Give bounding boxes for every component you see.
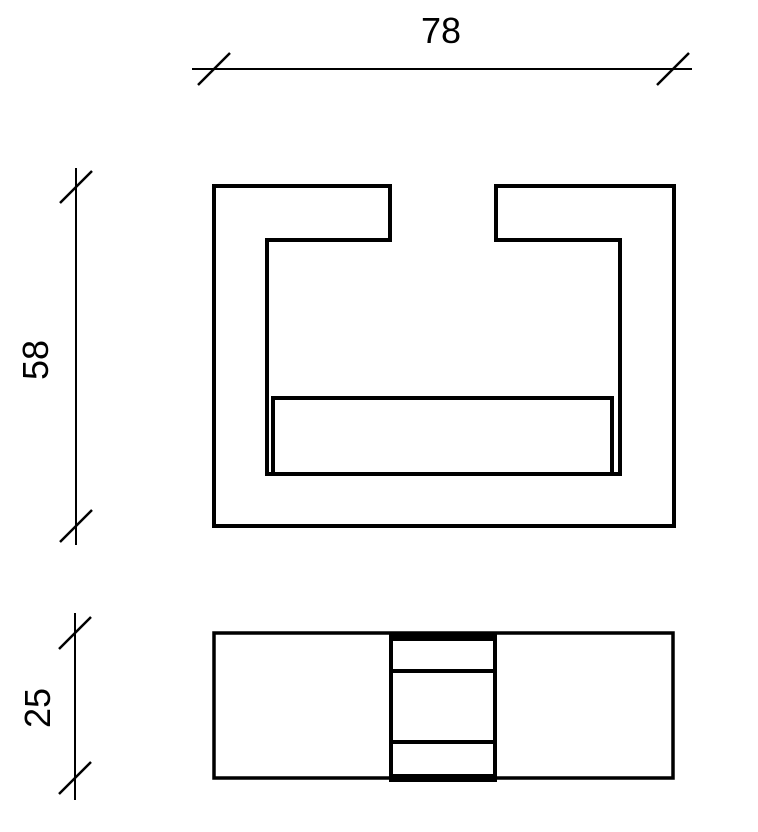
technical-drawing-canvas: 78 58 25 [0, 0, 758, 832]
front-view [214, 186, 674, 526]
dimension-front-height-label: 58 [15, 340, 56, 380]
dimension-front-height: 58 [15, 168, 92, 545]
top-view [214, 633, 673, 778]
dimension-width: 78 [192, 10, 692, 85]
dimension-width-label: 78 [421, 10, 461, 51]
dimension-top-depth-label: 25 [17, 688, 58, 728]
technical-drawing-page: 78 58 25 [0, 0, 758, 832]
dimension-top-depth: 25 [17, 613, 91, 800]
top-view-outline [214, 633, 673, 778]
front-view-insert-rect [273, 398, 612, 474]
